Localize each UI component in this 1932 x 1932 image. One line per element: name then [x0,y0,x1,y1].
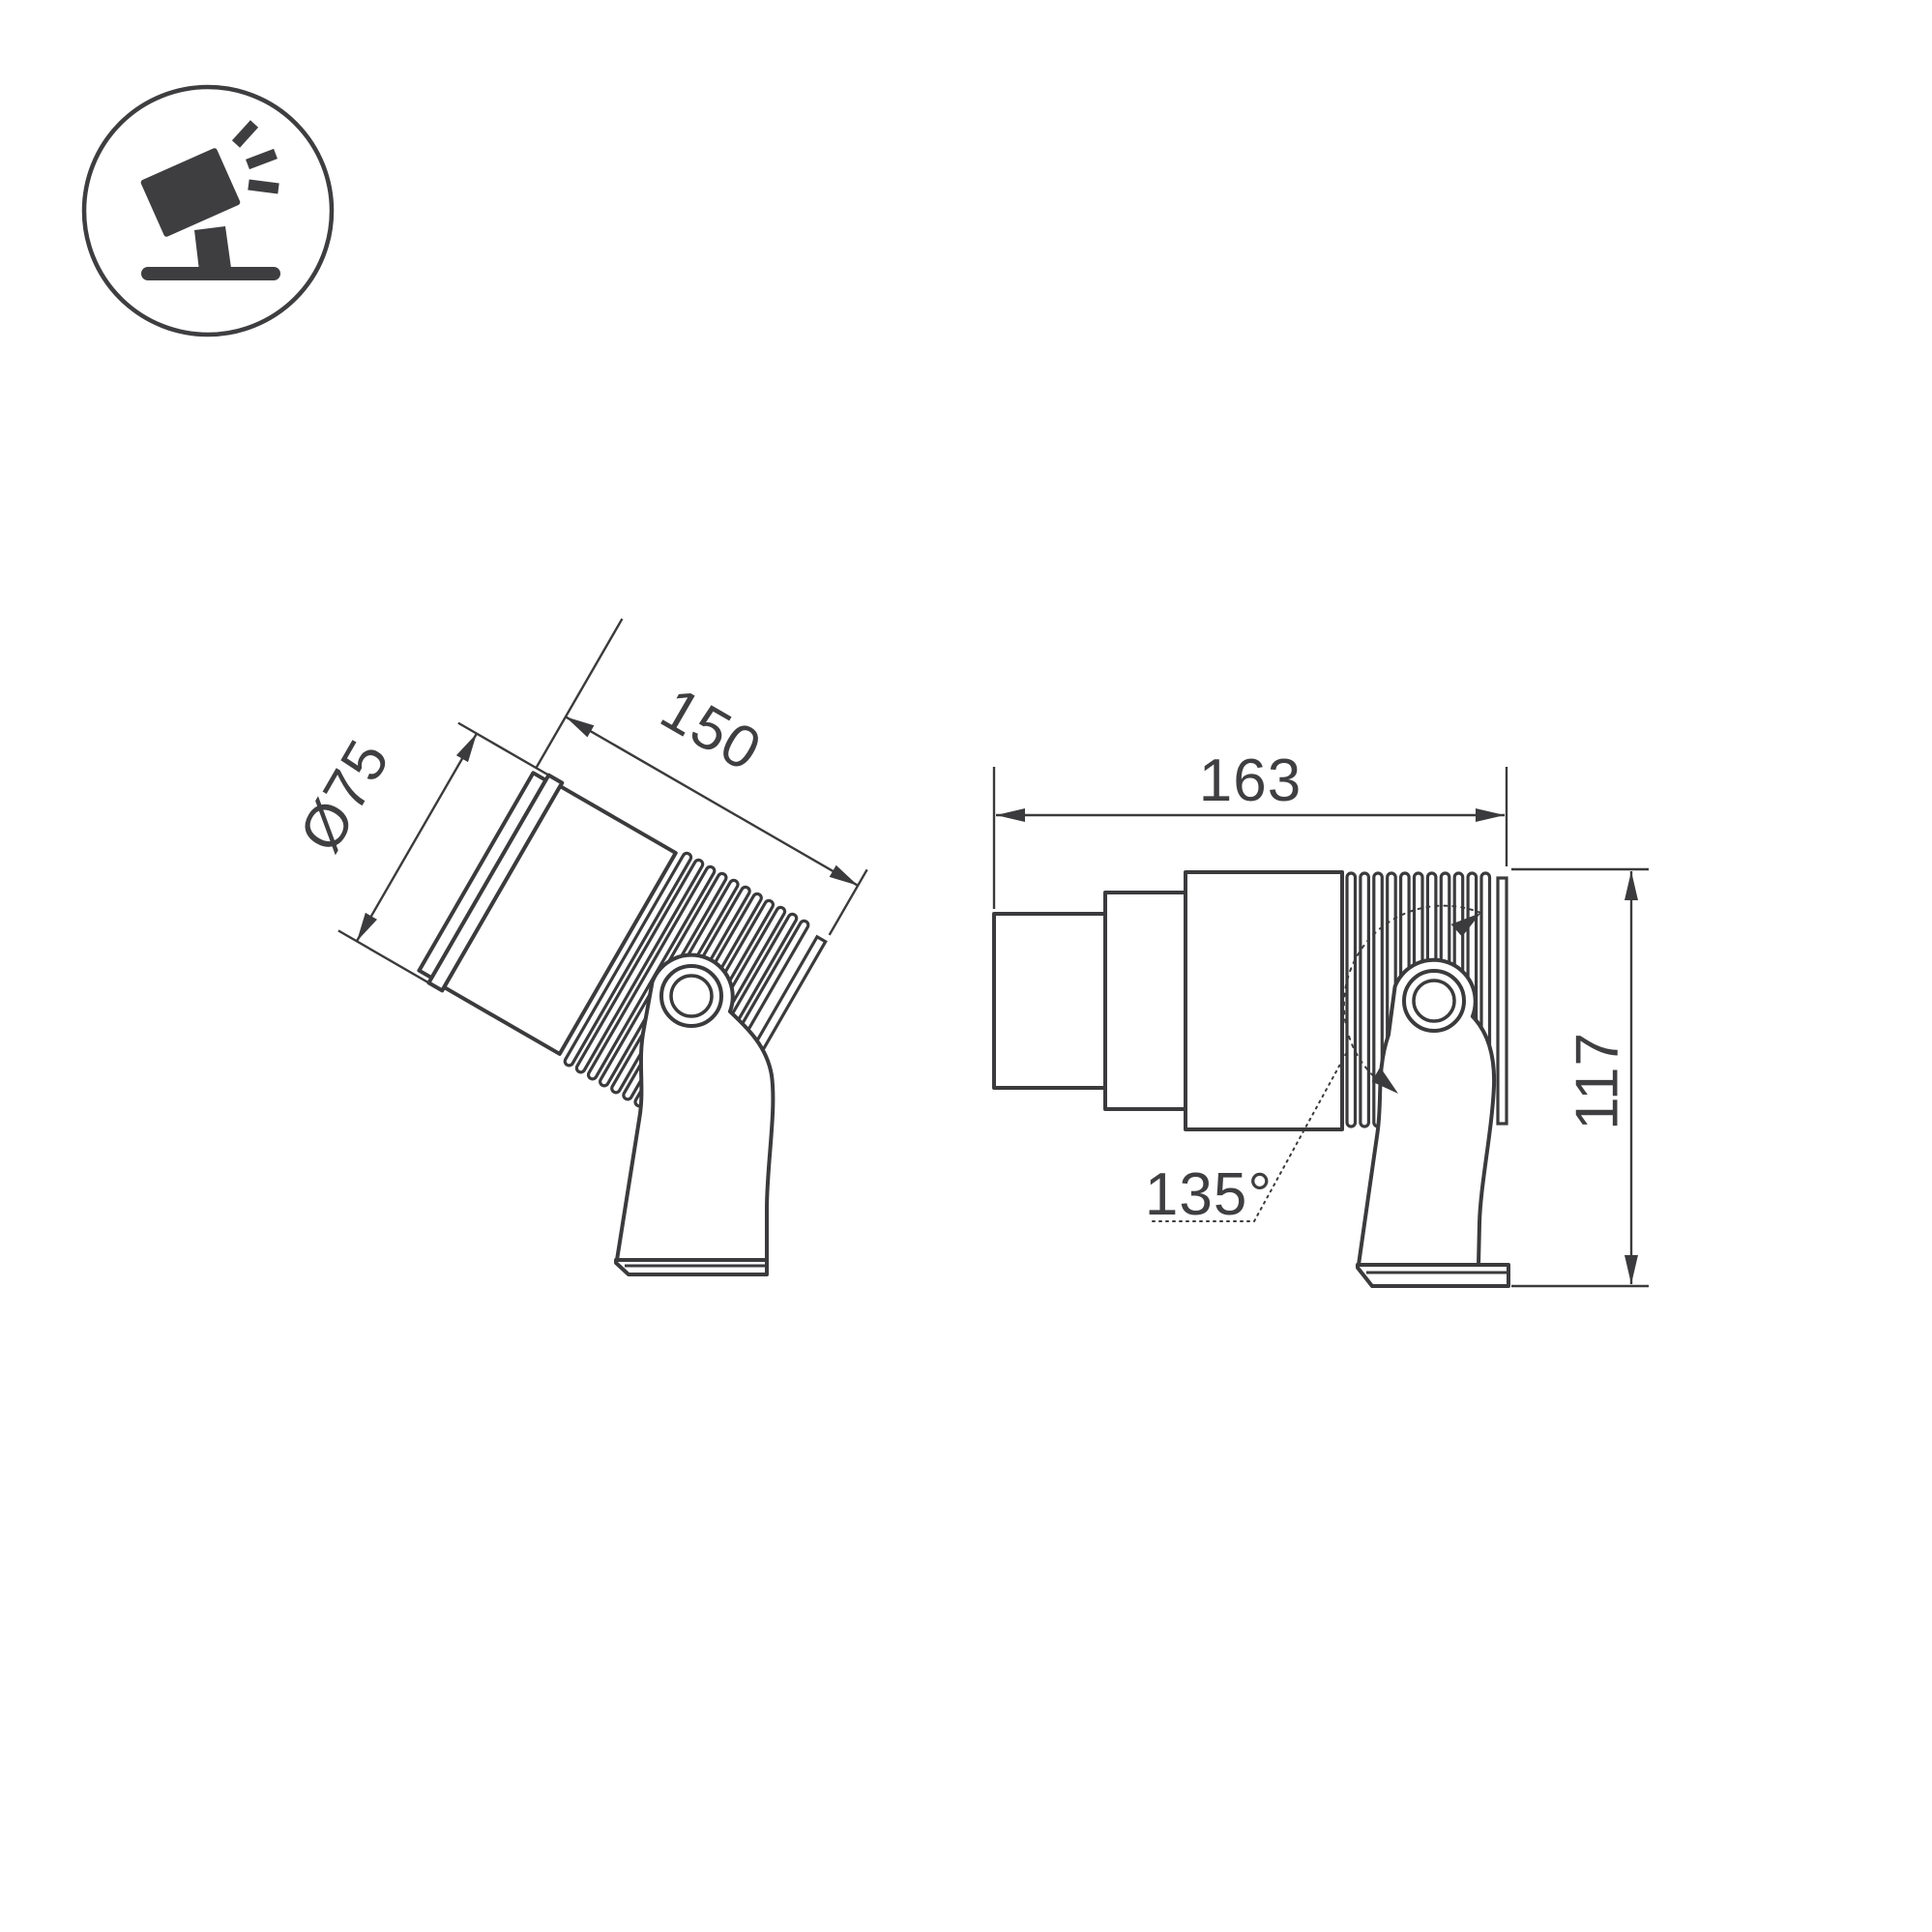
left-view: Ø75 150 [255,526,915,1274]
technical-drawing-svg: Ø75 150 [0,0,1932,1932]
right-dim-height: 117 [1511,869,1649,1286]
right-mid-section [1105,893,1186,1109]
right-length-label: 163 [1199,747,1302,814]
right-view: 163 117 135° [994,747,1649,1286]
right-height-label: 117 [1565,1032,1631,1130]
right-rear-end-cap [1498,878,1507,1124]
right-front-snout [994,914,1105,1088]
icon-light-rays [236,124,278,189]
drawing-canvas: Ø75 150 [0,0,1932,1932]
left-diameter-label: Ø75 [287,729,403,864]
icon-lamp-head [140,147,242,237]
spotlight-icon [84,87,332,335]
icon-lamp-stand [194,226,231,271]
right-bracket-base [1358,1265,1508,1286]
left-view-body-group: Ø75 150 [255,526,915,1146]
right-angle-label: 135° [1145,1161,1273,1228]
icon-ground-bar [141,267,280,280]
left-length-label: 150 [650,675,773,784]
right-main-housing [1186,872,1342,1129]
